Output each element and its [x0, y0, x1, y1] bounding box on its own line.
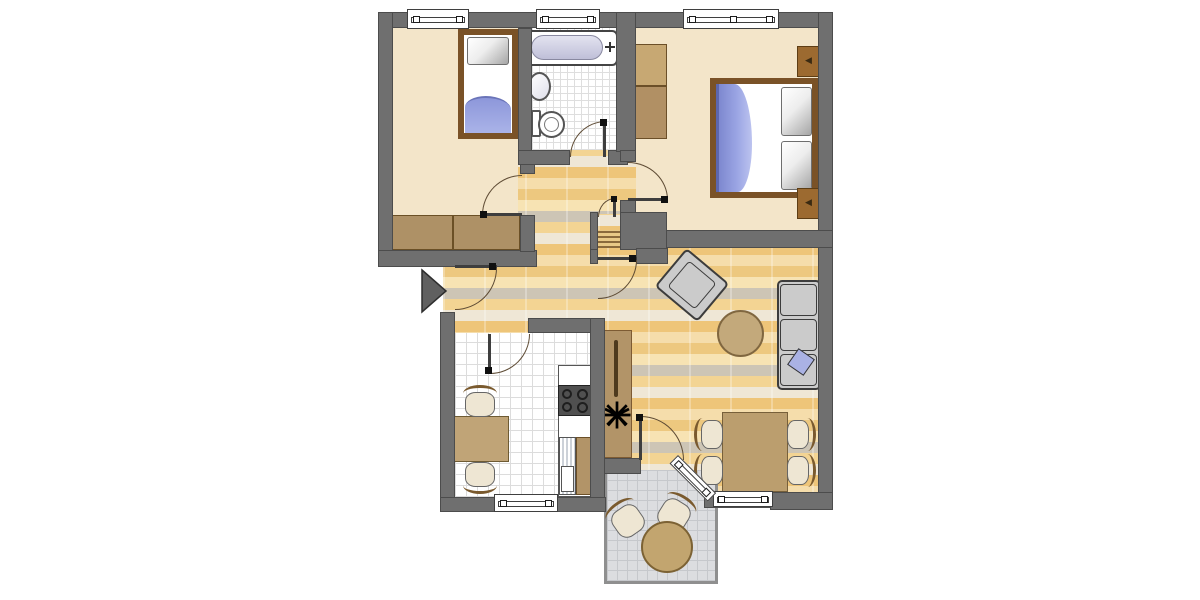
window-handle: [761, 496, 768, 503]
nightstand-bottom: ◀: [797, 188, 820, 219]
bedroom2-wardrobe-lower: [632, 86, 667, 139]
wall: [620, 150, 636, 162]
wall: [770, 492, 833, 510]
bathroom-window: [536, 9, 600, 29]
wall: [440, 312, 455, 512]
bathtub-basin: [531, 35, 603, 60]
window-handle: [701, 488, 711, 498]
bedroom2-window: [683, 9, 779, 29]
door-handle: [661, 196, 668, 203]
wall: [520, 215, 535, 252]
dining-chair: [701, 420, 723, 449]
wall-lamp-icon: ◀: [805, 198, 812, 208]
double-bed-pillow-top: [781, 87, 812, 136]
window-handle: [456, 16, 463, 23]
sofa-cushion: [780, 319, 817, 351]
door-handle: [629, 255, 636, 262]
floor-plan: ◀ ◀: [0, 0, 1200, 600]
wall: [378, 12, 393, 267]
wall: [518, 150, 570, 165]
door-handle: [636, 414, 643, 421]
wall: [620, 212, 667, 250]
kitchen-table: [452, 416, 509, 462]
stove-burner: [562, 402, 572, 412]
stove-burner: [577, 389, 588, 400]
stove-burner: [562, 389, 572, 399]
window-handle: [718, 496, 725, 503]
door-handle: [600, 119, 607, 126]
wall: [636, 248, 668, 264]
sideboard-slot: [614, 340, 618, 397]
wall-lamp-icon: ◀: [805, 56, 812, 66]
kitchen-sink-basin: [561, 466, 574, 492]
door-handle: [485, 367, 492, 374]
bedroom2-wardrobe-upper: [632, 44, 667, 86]
closet-wall: [590, 212, 598, 250]
nightstand-top: ◀: [797, 46, 820, 77]
entrance-arrow-icon: [420, 268, 448, 314]
living-window: [713, 491, 773, 507]
wall: [590, 248, 598, 264]
door-handle: [489, 263, 496, 270]
wall: [818, 12, 833, 510]
stove-burner: [577, 402, 588, 413]
window-handle: [413, 16, 420, 23]
wall: [590, 318, 605, 512]
double-bed-blanket: [716, 84, 752, 192]
kitchen-window: [494, 494, 558, 512]
door-handle: [480, 211, 487, 218]
bathroom-door: [603, 121, 606, 157]
single-bed-pillow: [467, 37, 509, 65]
kitchen-chair-top: [465, 392, 495, 417]
wall: [616, 12, 636, 152]
bedroom1-window: [407, 9, 469, 29]
dining-chair: [787, 456, 809, 485]
single-bed-blanket: [465, 96, 511, 133]
kitchen-chair-bottom: [465, 462, 495, 487]
coffee-table: [717, 310, 764, 357]
bedroom1-wardrobe-divider: [452, 216, 454, 249]
storage-closet-shelves: [598, 230, 620, 248]
balcony-table: [641, 521, 693, 573]
bedroom1-door: [482, 213, 522, 216]
window-handle: [587, 16, 594, 23]
door-handle: [611, 196, 617, 202]
toilet-bowl-inner: [544, 117, 559, 132]
window-handle: [500, 500, 507, 507]
dining-table: [722, 412, 788, 492]
sideboard: [604, 330, 632, 458]
window-handle: [766, 16, 773, 23]
double-bed-pillow-bottom: [781, 141, 812, 190]
wall: [604, 458, 641, 474]
window-handle: [689, 16, 696, 23]
dining-chair: [787, 420, 809, 449]
window-handle: [542, 16, 549, 23]
bathtub-faucet-icon-dot: [609, 42, 611, 52]
plant-icon: [602, 400, 632, 430]
wall: [518, 28, 532, 152]
window-handle: [545, 500, 552, 507]
sofa-cushion: [780, 284, 817, 316]
balcony-door: [639, 416, 642, 460]
window-handle: [730, 16, 737, 23]
